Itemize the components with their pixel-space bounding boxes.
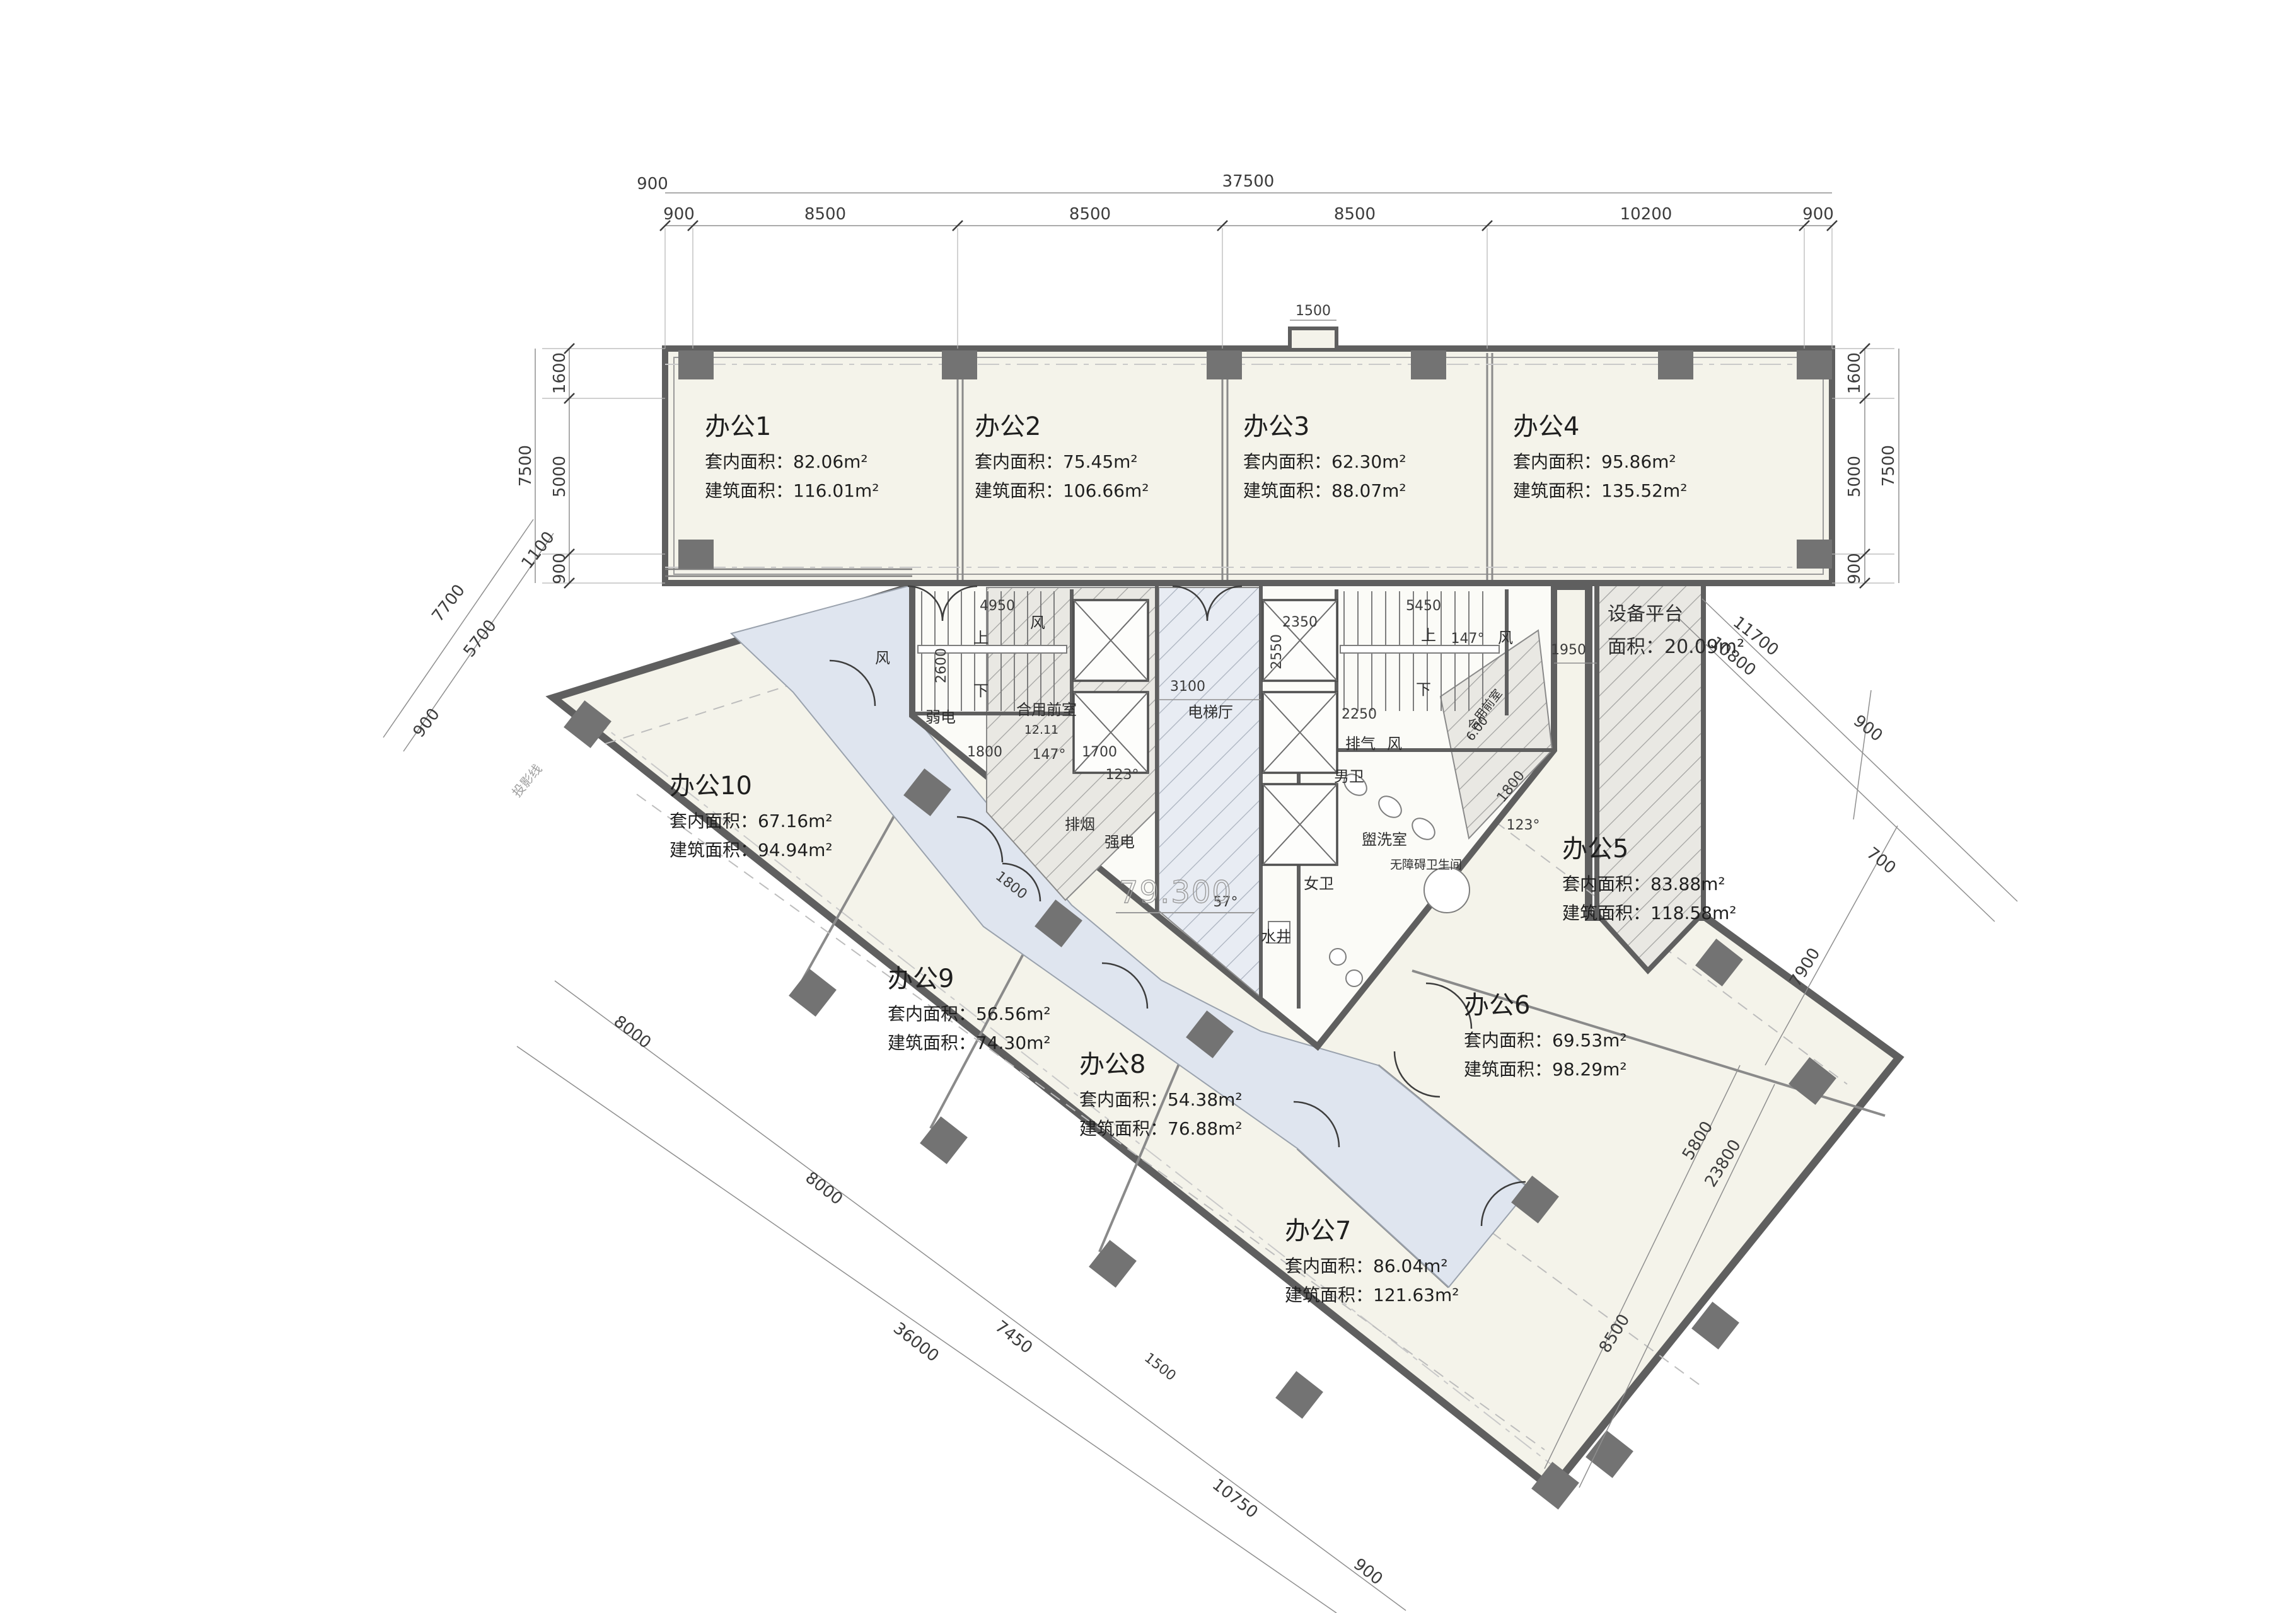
platform-name: 设备平台 xyxy=(1608,603,1683,625)
office7-gross: 建筑面积：121.63m² xyxy=(1285,1285,1459,1305)
dim-nw-1: 7700 xyxy=(429,581,469,626)
exhaust-label: 排气 xyxy=(1345,735,1376,753)
office4-name: 办公4 xyxy=(1513,412,1579,441)
dim-sw-0: 8000 xyxy=(610,1012,655,1053)
dim-core-3100: 3100 xyxy=(1170,679,1205,695)
front-room1-area: 12.11 xyxy=(1024,723,1058,737)
stair-right-up-label: 上 xyxy=(1421,627,1436,644)
washroom-label: 盥洗室 xyxy=(1362,831,1407,848)
office9-inner: 套内面积：56.56m² xyxy=(888,1003,1051,1024)
angle-147b: 147° xyxy=(1451,631,1485,647)
dim-top-4: 10200 xyxy=(1620,205,1673,224)
dim-sw-total: 36000 xyxy=(890,1319,942,1366)
dim-sw-2: 7450 xyxy=(992,1317,1036,1358)
floorplan-drawing: 37500 900 8500 8500 8500 10200 900 1500 … xyxy=(0,0,2296,1613)
dim-core-5450: 5450 xyxy=(1406,598,1441,614)
office2-gross: 建筑面积：106.66m² xyxy=(975,480,1149,501)
office10-gross: 建筑面积：94.94m² xyxy=(670,840,833,860)
strip-notch xyxy=(1290,328,1336,350)
dim-right-1: 5000 xyxy=(1845,456,1864,497)
front-room1-label: 合用前室 xyxy=(1016,701,1077,719)
office4-gross: 建筑面积：135.52m² xyxy=(1513,480,1687,501)
dim-core-2550: 2550 xyxy=(1269,634,1285,669)
angle-123b: 123° xyxy=(1507,818,1540,833)
fan-shaft-label-d: 风 xyxy=(1387,735,1402,753)
dim-left-total: 7500 xyxy=(516,445,535,487)
dim-top-left-900: 900 xyxy=(637,175,668,194)
dim-left-2: 900 xyxy=(550,553,569,584)
office6-name: 办公6 xyxy=(1464,991,1530,1020)
office1-inner: 套内面积：82.06m² xyxy=(705,451,868,472)
dim-sw-3: 10750 xyxy=(1209,1475,1261,1522)
dim-top-0: 900 xyxy=(663,205,695,224)
dim-core-2350: 2350 xyxy=(1282,615,1318,630)
water-shaft-label: 水井 xyxy=(1261,928,1291,945)
office5-inner: 套内面积：83.88m² xyxy=(1562,874,1725,894)
dim-core-2600: 2600 xyxy=(934,648,949,683)
dim-sw-4: 900 xyxy=(1350,1555,1386,1589)
strong-electric-label: 强电 xyxy=(1105,833,1135,851)
dim-left-1: 5000 xyxy=(550,456,569,497)
dim-top-2: 8500 xyxy=(1069,205,1111,224)
office8-gross: 建筑面积：76.88m² xyxy=(1079,1118,1243,1139)
office3-inner: 套内面积：62.30m² xyxy=(1243,451,1406,472)
office9-name: 办公9 xyxy=(888,964,954,993)
dim-1950: 1950 xyxy=(1551,642,1586,658)
office10-inner: 套内面积：67.16m² xyxy=(670,811,833,831)
elevator-hall-label: 电梯厅 xyxy=(1188,703,1233,721)
office7-inner: 套内面积：86.04m² xyxy=(1285,1256,1448,1276)
angle-147a: 147° xyxy=(1033,747,1066,763)
dim-right-total: 7500 xyxy=(1879,445,1898,487)
office5-name: 办公5 xyxy=(1562,835,1628,864)
office2-inner: 套内面积：75.45m² xyxy=(975,451,1138,472)
office6-inner: 套内面积：69.53m² xyxy=(1464,1030,1627,1051)
accessible-wc-label: 无障碍卫生间 xyxy=(1390,858,1462,872)
office1-name: 办公1 xyxy=(705,412,771,441)
smoke-exhaust-label: 排烟 xyxy=(1065,816,1095,833)
office1-gross: 建筑面积：116.01m² xyxy=(705,480,879,501)
stair-left-down-label: 下 xyxy=(973,682,989,700)
dim-core-4950: 4950 xyxy=(980,598,1015,614)
office3-gross: 建筑面积：88.07m² xyxy=(1243,480,1406,501)
dim-top-total: 37500 xyxy=(1222,172,1275,191)
dim-ne-700: 700 xyxy=(1863,844,1899,878)
dim-top-3: 8500 xyxy=(1334,205,1376,224)
dim-top-1: 8500 xyxy=(804,205,846,224)
fan-shaft-label-b: 风 xyxy=(1030,614,1045,632)
level-marker: 79.300 xyxy=(1119,875,1232,910)
office4-inner: 套内面积：95.86m² xyxy=(1513,451,1676,472)
office2-name: 办公2 xyxy=(975,412,1041,441)
office5-gross: 建筑面积：118.58m² xyxy=(1562,903,1736,923)
office8-name: 办公8 xyxy=(1079,1050,1145,1079)
office3-name: 办公3 xyxy=(1243,412,1309,441)
dim-core-2250: 2250 xyxy=(1342,707,1377,722)
office8-inner: 套内面积：54.38m² xyxy=(1079,1089,1243,1110)
dim-core-1700: 1700 xyxy=(1082,744,1117,760)
female-wc-label: 女卫 xyxy=(1304,875,1334,893)
male-wc-label: 男卫 xyxy=(1334,768,1364,785)
weak-electric-label: 弱电 xyxy=(925,708,956,726)
dim-right-2: 900 xyxy=(1845,553,1864,584)
dim-ne-900: 900 xyxy=(1850,712,1886,746)
floorplan-sheet: 37500 900 8500 8500 8500 10200 900 1500 … xyxy=(0,0,2296,1613)
office9-gross: 建筑面积：74.30m² xyxy=(888,1032,1051,1053)
dim-ne-7900: 7900 xyxy=(1786,945,1824,990)
angle-123a: 123° xyxy=(1106,767,1139,783)
dim-top-5: 900 xyxy=(1802,205,1834,224)
platform-area: 面积：20.09m² xyxy=(1608,636,1744,658)
office7-name: 办公7 xyxy=(1285,1217,1351,1246)
fan-shaft-label-a: 风 xyxy=(875,649,890,667)
dim-sw-1: 8000 xyxy=(802,1169,847,1209)
office6-gross: 建筑面积：98.29m² xyxy=(1464,1059,1627,1080)
dim-notch: 1500 xyxy=(1296,303,1331,319)
projection-line-label: 投影线 xyxy=(509,761,545,800)
dim-core-1800: 1800 xyxy=(967,744,1002,760)
stair-right-down-label: 下 xyxy=(1416,681,1431,698)
stair-left-up-label: 上 xyxy=(973,629,989,647)
fan-shaft-label-c: 风 xyxy=(1498,629,1513,647)
dim-nw-2: 5700 xyxy=(460,616,501,661)
office10-name: 办公10 xyxy=(670,772,752,801)
dim-right-0: 1600 xyxy=(1845,352,1864,394)
dim-left-0: 1600 xyxy=(550,352,569,394)
dim-sw-jog: 1500 xyxy=(1141,1350,1179,1384)
